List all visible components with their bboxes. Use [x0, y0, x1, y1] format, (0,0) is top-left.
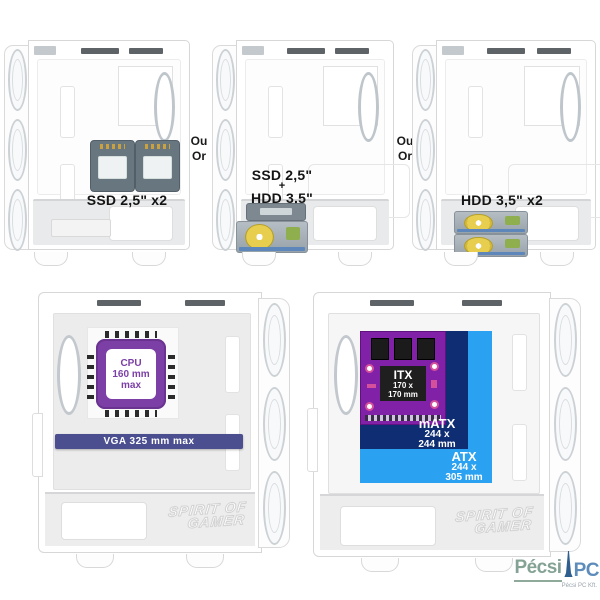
front-fan-icon: [416, 49, 435, 111]
case-foot: [34, 252, 68, 266]
vent-grille: [129, 48, 163, 54]
itx-size-label: ITX 170 x 170 mm: [380, 366, 426, 401]
case-front-panel: [258, 298, 290, 548]
hdd-pcb: [505, 216, 519, 225]
mb-name: ITX: [380, 369, 426, 381]
board-component-icon: [431, 380, 437, 388]
ssd-drive-icon: [90, 140, 135, 192]
logo-subtext: Pécsi PC Kft.: [511, 583, 599, 589]
product-infographic: SSD 2,5" x2 Ou Or: [0, 0, 600, 600]
cpu-label-line: CPU: [120, 358, 141, 369]
cpu-chip-icon: CPU 160 mm max: [96, 339, 166, 409]
or-label-en: Or: [182, 149, 216, 164]
case-foot: [338, 252, 372, 266]
case-diagram-motherboards: ITX 170 x 170 mm mATX 244 x 244 mm ATX 2…: [313, 292, 581, 572]
case-front-panel: [412, 45, 438, 250]
mb-dim: 170 mm: [380, 390, 426, 399]
cpu-pins: [87, 349, 94, 399]
side-bracket: [307, 408, 318, 472]
drive-slot-cutout: [268, 86, 283, 138]
tv-tower-icon: [564, 551, 573, 582]
front-fan-icon: [554, 303, 577, 377]
board-chip-icon: [371, 338, 389, 360]
io-panel: [242, 46, 264, 55]
cable-slot-cutout: [225, 336, 240, 393]
matx-size-label: mATX 244 x 244 mm: [406, 417, 468, 450]
logo-text-pc: PC: [574, 560, 599, 582]
rear-fan-icon: [57, 335, 81, 415]
case-foot: [242, 252, 276, 266]
hdd-pcb: [505, 239, 519, 248]
hdd-base: [457, 229, 525, 232]
drive-slot-cutout: [468, 86, 483, 138]
case-front-panel: [4, 45, 30, 250]
board-component-icon: [367, 384, 376, 388]
psu-cutout: [313, 206, 377, 241]
ssd-label-area: [143, 156, 172, 179]
case-foot: [540, 252, 574, 266]
vent-grille: [185, 300, 225, 306]
case-body: ITX 170 x 170 mm mATX 244 x 244 mm ATX 2…: [313, 292, 551, 557]
case-body: CPU 160 mm max VGA 325 mm max SPIRIT OF …: [38, 292, 262, 553]
ssd-pins: [100, 144, 125, 149]
ssd-drive-icon: [135, 140, 180, 192]
ssd-drive-icon: [246, 203, 306, 221]
io-panel: [34, 46, 56, 55]
ssd-label-area: [98, 156, 127, 179]
motherboard-tray: [445, 59, 587, 195]
vent-grille: [97, 300, 141, 306]
vent-grille: [81, 48, 119, 54]
vent-grille: [537, 48, 571, 54]
psu-shroud: SPIRIT OF GAMER: [320, 494, 544, 550]
cpu-pins: [168, 349, 175, 399]
case-diagram-clearances: CPU 160 mm max VGA 325 mm max SPIRIT OF …: [38, 292, 290, 568]
mounting-hole-icon: [430, 362, 439, 371]
cpu-pins: [105, 410, 157, 417]
front-fan-icon: [263, 387, 286, 461]
psu-shroud: SPIRIT OF GAMER: [45, 492, 255, 546]
front-fan-icon: [216, 49, 235, 111]
psu-cutout: [109, 206, 173, 241]
spirit-of-gamer-watermark: SPIRIT OF GAMER: [453, 505, 534, 536]
board-chip-icon: [394, 338, 412, 360]
case-front-panel: [212, 45, 238, 250]
hdd-base: [239, 247, 305, 251]
cable-slot-cutout: [512, 424, 527, 481]
psu-vent: [51, 219, 111, 237]
case-foot: [132, 252, 166, 266]
front-fan-icon: [8, 119, 27, 181]
hdd-drive-icon: [236, 221, 308, 253]
rear-fan-icon: [560, 72, 581, 142]
case-front-panel: [549, 298, 581, 552]
spirit-of-gamer-watermark: SPIRIT OF GAMER: [166, 500, 247, 531]
vent-grille: [287, 48, 325, 54]
front-fan-icon: [263, 303, 286, 377]
mounting-hole-icon: [365, 402, 374, 411]
hdd-pcb: [286, 227, 300, 240]
mounting-hole-icon: [430, 400, 439, 409]
logo-wordmark: Pécsi PC: [511, 551, 599, 582]
case-diagram-ssd-hdd: SSD 2,5" + HDD 3,5": [212, 40, 394, 266]
rear-fan-icon: [334, 335, 358, 415]
board-chip-icon: [417, 338, 435, 360]
storage-config-label: SSD 2,5" x2: [62, 192, 192, 208]
case-diagram-hdd-x2: HDD 3,5" x2: [412, 40, 596, 266]
io-panel: [442, 46, 464, 55]
cpu-clearance-label: CPU 160 mm max: [106, 349, 156, 399]
front-fan-icon: [554, 387, 577, 461]
case-foot: [444, 252, 478, 266]
ssd-label-area: [260, 208, 292, 215]
front-fan-icon: [554, 471, 577, 545]
vga-clearance-bar: VGA 325 mm max: [55, 434, 243, 449]
storage-config-label: SSD 2,5" + HDD 3,5": [226, 168, 338, 205]
psu-cutout: [61, 502, 147, 540]
pecsipc-logo: Pécsi PC Pécsi PC Kft.: [511, 551, 599, 589]
front-fan-icon: [416, 119, 435, 181]
vent-grille: [462, 300, 502, 306]
mb-dim: 305 mm: [436, 473, 492, 483]
hdd-drive-icon: [454, 211, 528, 234]
cpu-label-line: max: [121, 380, 141, 391]
case-foot: [361, 558, 399, 572]
cable-slot-cutout: [512, 334, 527, 391]
case-foot: [475, 558, 513, 572]
rear-fan-icon: [154, 72, 175, 142]
mounting-hole-icon: [365, 364, 374, 373]
front-fan-icon: [416, 189, 435, 251]
front-fan-icon: [8, 189, 27, 251]
logo-text-pecsi: Pécsi: [514, 557, 561, 582]
or-label-fr: Ou: [182, 134, 216, 149]
case-diagram-ssd-x2: SSD 2,5" x2: [4, 40, 190, 266]
vent-grille: [487, 48, 525, 54]
cpu-pins: [105, 331, 157, 338]
case-foot: [186, 554, 224, 568]
case-foot: [76, 554, 114, 568]
drive-slot-cutout: [60, 86, 75, 138]
ssd-pins: [145, 144, 170, 149]
atx-size-label: ATX 244 x 305 mm: [436, 450, 492, 483]
storage-config-label: HDD 3,5" x2: [434, 192, 570, 208]
psu-cutout: [340, 506, 436, 546]
cpu-label-line: 160 mm: [112, 369, 149, 380]
motherboard-itx-board: ITX 170 x 170 mm: [360, 331, 446, 425]
front-fan-icon: [8, 49, 27, 111]
or-separator: Ou Or: [182, 134, 216, 164]
mb-dim: 170 x: [380, 381, 426, 390]
vent-grille: [370, 300, 414, 306]
side-bracket: [32, 413, 43, 477]
rear-fan-icon: [358, 72, 379, 142]
front-fan-icon: [263, 471, 286, 545]
vent-grille: [335, 48, 369, 54]
